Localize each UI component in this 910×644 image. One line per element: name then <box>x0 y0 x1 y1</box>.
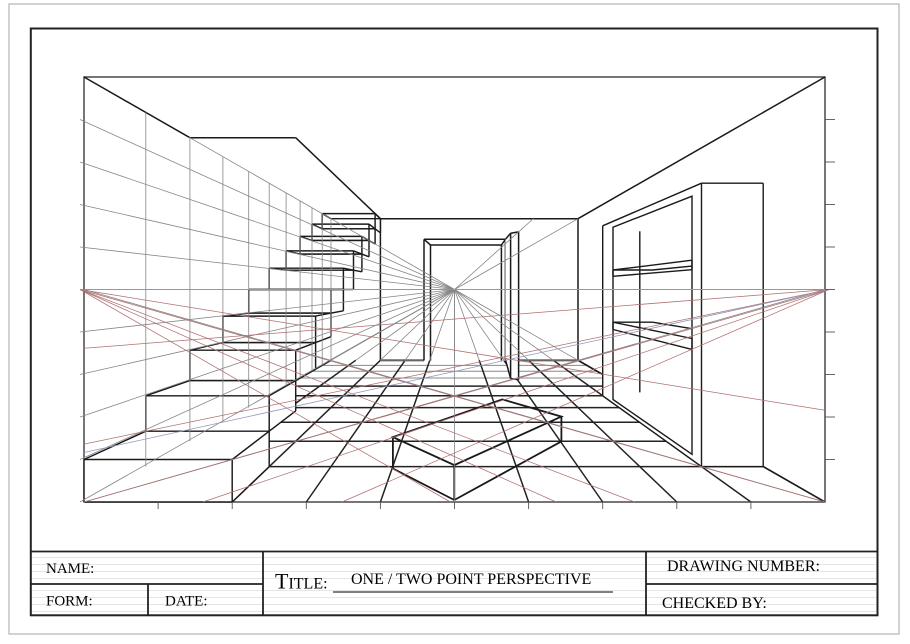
svg-text:DATE:: DATE: <box>165 594 208 610</box>
svg-text:CHECKED BY:: CHECKED BY: <box>662 595 767 612</box>
svg-text:NAME:: NAME: <box>46 561 94 577</box>
svg-text:FORM:: FORM: <box>46 594 93 610</box>
svg-text:DRAWING NUMBER:: DRAWING NUMBER: <box>667 558 820 575</box>
svg-text:ONE / TWO POINT PERSPECTIVE: ONE / TWO POINT PERSPECTIVE <box>351 571 591 588</box>
